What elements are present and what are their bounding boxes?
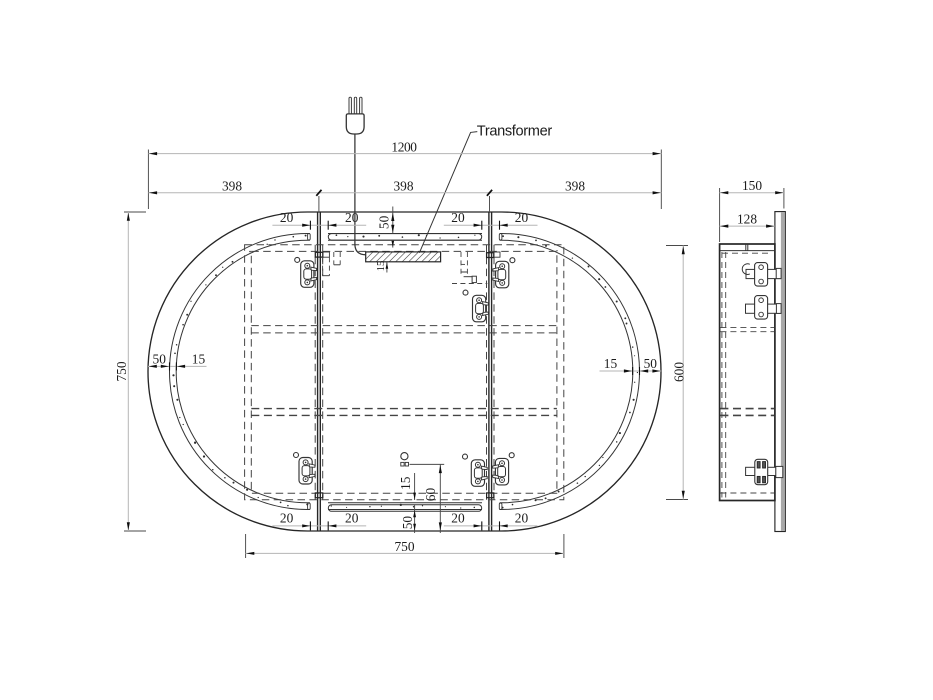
svg-text:50: 50 xyxy=(376,215,391,229)
svg-text:750: 750 xyxy=(114,361,129,381)
svg-text:Transformer: Transformer xyxy=(477,123,553,139)
svg-text:50: 50 xyxy=(153,351,167,366)
svg-text:60: 60 xyxy=(423,488,438,502)
svg-text:398: 398 xyxy=(222,178,242,193)
svg-text:20: 20 xyxy=(345,511,359,526)
svg-text:150: 150 xyxy=(742,178,762,193)
svg-text:600: 600 xyxy=(671,362,686,382)
svg-text:1200: 1200 xyxy=(391,140,417,155)
svg-text:15: 15 xyxy=(376,261,387,272)
svg-text:20: 20 xyxy=(280,511,294,526)
svg-text:20: 20 xyxy=(451,511,465,526)
svg-text:20: 20 xyxy=(515,210,529,225)
svg-text:20: 20 xyxy=(280,210,294,225)
svg-text:15: 15 xyxy=(192,351,206,366)
svg-text:15: 15 xyxy=(604,356,618,371)
svg-text:20: 20 xyxy=(515,511,529,526)
svg-text:128: 128 xyxy=(737,211,757,226)
svg-text:398: 398 xyxy=(393,178,413,193)
svg-text:20: 20 xyxy=(451,210,465,225)
svg-text:398: 398 xyxy=(565,178,585,193)
svg-text:50: 50 xyxy=(400,516,415,530)
svg-text:750: 750 xyxy=(394,539,414,554)
svg-text:50: 50 xyxy=(644,356,658,371)
svg-text:20: 20 xyxy=(345,210,359,225)
svg-text:15: 15 xyxy=(398,476,413,490)
